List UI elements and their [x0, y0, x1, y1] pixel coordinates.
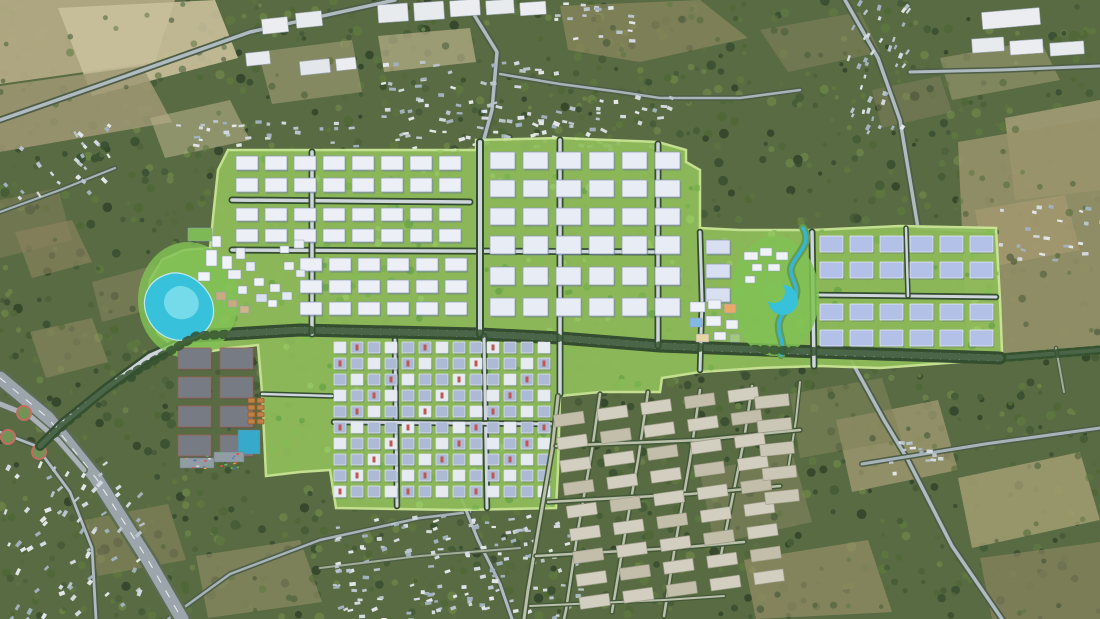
atmosphere-haze: [0, 0, 1100, 619]
masterplan-canvas: [0, 0, 1100, 619]
aerial-masterplan-render: [0, 0, 1100, 619]
